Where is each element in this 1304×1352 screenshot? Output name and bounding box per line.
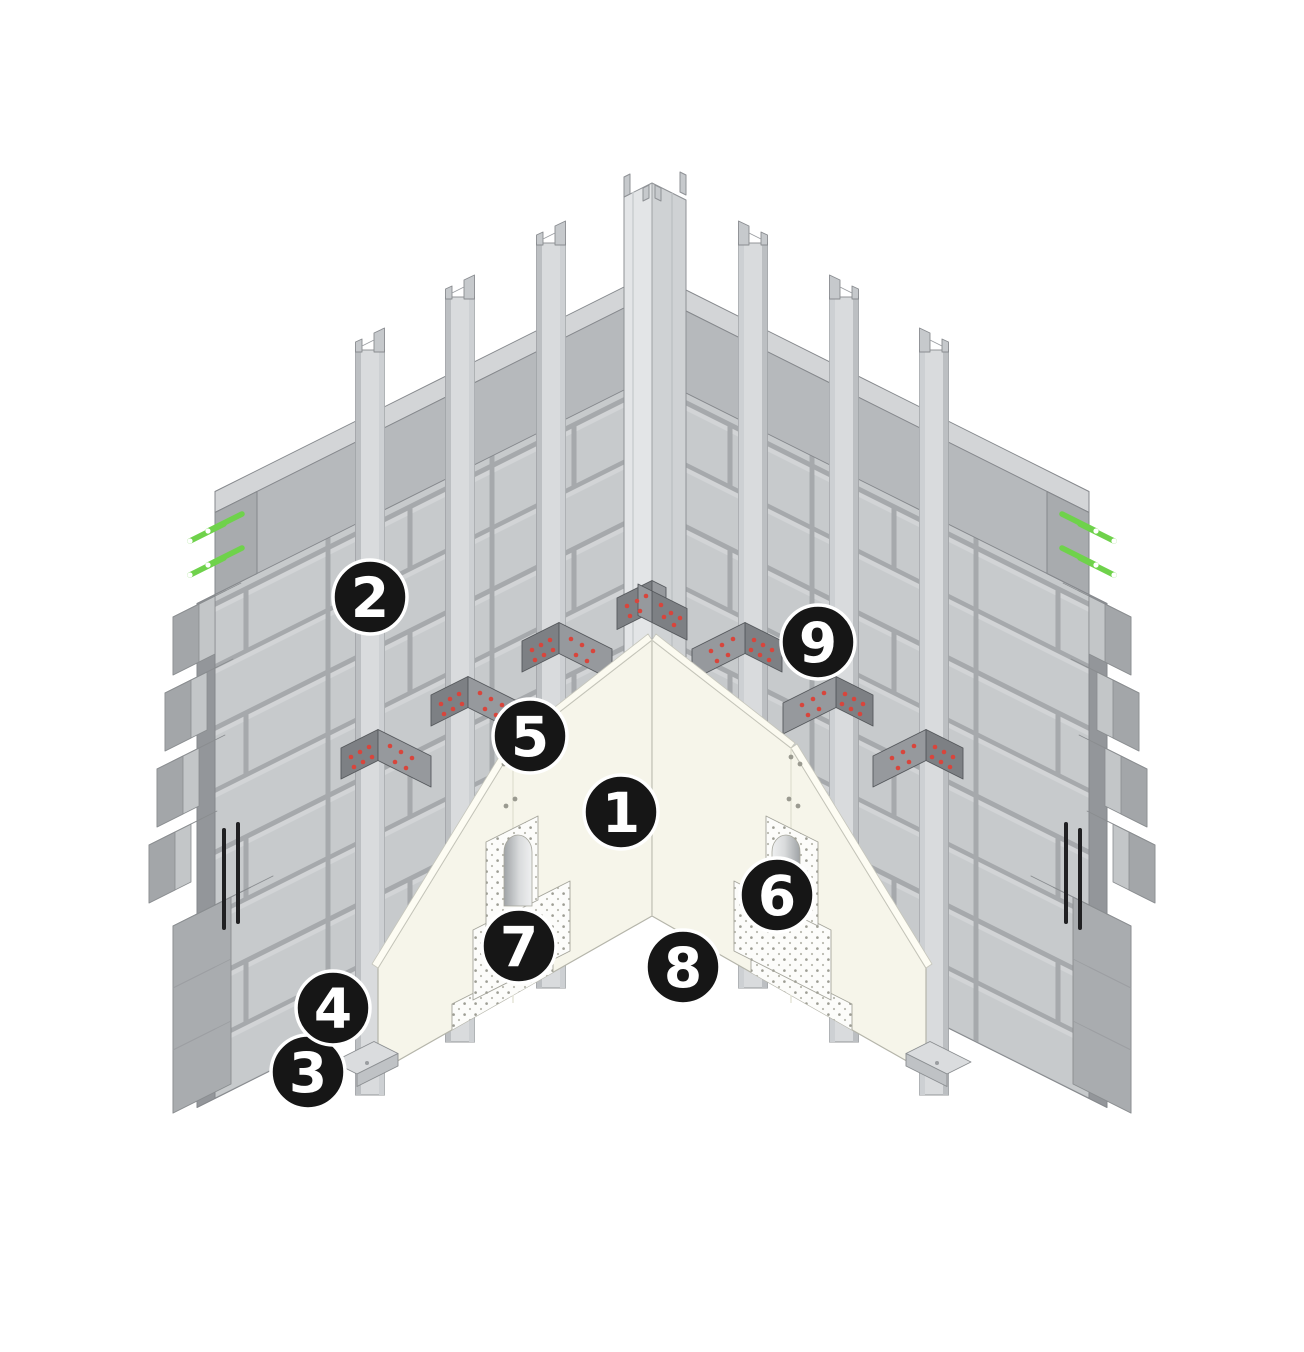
callout-number: 2 [351,566,389,630]
arch-cutout [504,835,532,906]
callout-number: 5 [511,705,549,769]
callout-number: 9 [799,611,837,675]
callout-badge-5: 5 [493,699,567,773]
callout-badge-9: 9 [781,605,855,679]
callout-badge-7: 7 [482,909,556,983]
callout-number: 1 [602,781,640,845]
callout-badge-4: 4 [296,971,370,1045]
isometric-wall-corner-detail: 1 2 3 4 5 6 7 8 9 [0,0,1304,1352]
base-track-right [906,1042,971,1087]
callout-number: 6 [758,864,796,928]
callout-number: 3 [289,1041,327,1105]
callout-badge-2: 2 [333,560,407,634]
callout-number: 7 [500,915,538,979]
construction-detail-figure: 1 2 3 4 5 6 7 8 9 [0,0,1304,1352]
callout-badge-1: 1 [584,775,658,849]
callout-badge-6: 6 [740,858,814,932]
callout-number: 4 [314,977,352,1041]
callout-number: 8 [664,936,702,1000]
callout-badge-8: 8 [646,930,720,1004]
